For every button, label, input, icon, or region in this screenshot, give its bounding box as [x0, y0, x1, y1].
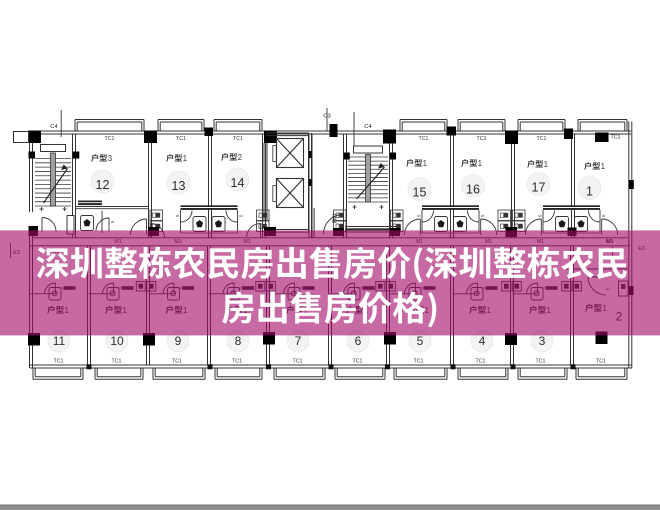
- svg-text:TC1: TC1: [611, 134, 621, 140]
- svg-text:TC1: TC1: [535, 359, 545, 365]
- svg-text:1: 1: [544, 160, 549, 169]
- svg-text:C4: C4: [364, 124, 372, 130]
- svg-text:15: 15: [413, 185, 427, 199]
- svg-text:TC1: TC1: [172, 359, 182, 365]
- svg-text:11: 11: [53, 334, 66, 348]
- svg-text:16: 16: [466, 182, 480, 196]
- svg-text:4: 4: [479, 334, 486, 348]
- svg-text:TC1: TC1: [104, 136, 114, 142]
- svg-text:1: 1: [601, 162, 606, 171]
- svg-text:3: 3: [108, 154, 113, 163]
- svg-text:2: 2: [238, 153, 243, 162]
- svg-text:TC1: TC1: [536, 136, 546, 142]
- svg-text:C3: C3: [323, 114, 330, 120]
- svg-text:7: 7: [295, 334, 302, 348]
- svg-text:1: 1: [586, 184, 593, 198]
- svg-text:TC1: TC1: [53, 359, 63, 365]
- svg-text:TC1: TC1: [352, 359, 362, 365]
- svg-text:TC1: TC1: [292, 359, 302, 365]
- svg-text:1: 1: [183, 154, 188, 163]
- svg-text:TC1: TC1: [596, 359, 606, 365]
- svg-text:C4: C4: [50, 124, 58, 130]
- svg-text:FM1: FM1: [333, 213, 339, 223]
- svg-text:3: 3: [539, 334, 546, 348]
- svg-text:TC1: TC1: [413, 359, 423, 365]
- svg-text:TC1: TC1: [111, 359, 121, 365]
- svg-text:TC1: TC1: [476, 136, 486, 142]
- svg-text:TC1: TC1: [176, 136, 186, 142]
- svg-text:10: 10: [110, 334, 124, 348]
- svg-text:TC1: TC1: [232, 359, 242, 365]
- svg-text:17: 17: [532, 180, 546, 194]
- svg-text:1: 1: [423, 159, 428, 168]
- svg-text:6: 6: [355, 334, 362, 348]
- svg-text:8: 8: [235, 334, 242, 348]
- svg-text:5: 5: [417, 334, 424, 348]
- svg-text:TC1: TC1: [475, 359, 485, 365]
- svg-text:TC1: TC1: [233, 136, 243, 142]
- svg-text:1: 1: [478, 159, 483, 168]
- svg-text:13: 13: [172, 179, 186, 193]
- svg-text:9: 9: [175, 334, 182, 348]
- svg-text:14: 14: [231, 176, 245, 190]
- svg-text:12: 12: [96, 178, 110, 192]
- svg-text:TC1: TC1: [418, 136, 428, 142]
